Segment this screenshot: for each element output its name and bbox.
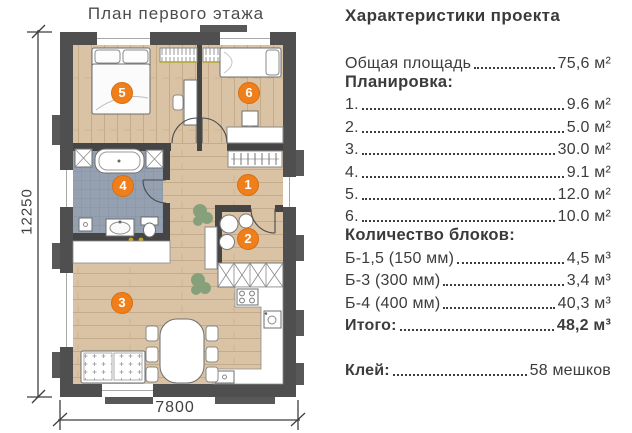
- block-value: 40,3 м³: [558, 295, 611, 313]
- block-label: Б-3 (300 мм): [345, 272, 440, 290]
- dot-leader: [443, 284, 563, 286]
- sink: [106, 219, 134, 236]
- specs-heading: Характеристики проекта: [345, 6, 611, 26]
- room-area-row: 2. 5.0 м²: [345, 114, 611, 136]
- room-number: 4.: [345, 164, 359, 182]
- page: План первого этажа 12250 7800 1 2 3 4 5 …: [0, 0, 632, 433]
- hallway-furniture: [228, 151, 282, 167]
- block-label: Б-1,5 (150 мм): [345, 250, 454, 268]
- room-marker-5: 5: [111, 82, 133, 104]
- glue-row: Клей: 58 мешков: [345, 358, 611, 380]
- block-label: Б-4 (400 мм): [345, 295, 440, 313]
- room-area-value: 9.1 м²: [567, 164, 611, 182]
- room-number: 5.: [345, 186, 359, 204]
- blocks-total-row: Итого: 48,2 м³: [345, 313, 611, 335]
- block-row: Б-4 (400 мм) 40,3 м³: [345, 290, 611, 312]
- room-marker-6: 6: [238, 82, 260, 104]
- stove: [237, 289, 258, 305]
- dot-leader: [393, 374, 527, 376]
- coat-rack: [228, 151, 282, 167]
- blocks-total-label: Итого:: [345, 317, 397, 335]
- blocks-total-value: 48,2 м³: [557, 317, 611, 335]
- room-area-row: 3. 30.0 м²: [345, 137, 611, 159]
- room-number: 3.: [345, 141, 359, 159]
- room-area-value: 12.0 м²: [558, 186, 611, 204]
- room-area-value: 5.0 м²: [567, 119, 611, 137]
- room-number: 6.: [345, 208, 359, 226]
- specs-panel: Характеристики проекта Общая площадь 75,…: [345, 6, 611, 380]
- window: [220, 32, 270, 45]
- dining-table: [146, 319, 218, 383]
- room-number: 1.: [345, 96, 359, 114]
- dimension-vertical-label: 12250: [19, 176, 36, 248]
- room-area-value: 9.6 м²: [567, 96, 611, 114]
- window: [97, 32, 150, 45]
- room-marker-2: 2: [237, 228, 259, 250]
- double-bed: [92, 48, 150, 114]
- sofa: [81, 351, 145, 383]
- closet-band: [73, 241, 170, 263]
- layout-heading: Планировка:: [345, 73, 611, 92]
- dot-leader: [443, 307, 554, 309]
- cabinet: [75, 149, 92, 167]
- dot-leader: [362, 131, 564, 133]
- room-area-row: 5. 12.0 м²: [345, 182, 611, 204]
- washer: [220, 215, 238, 233]
- block-value: 4,5 м³: [567, 250, 611, 268]
- floor-plan-drawing: [0, 0, 316, 433]
- shelf: [227, 127, 283, 143]
- blocks-list: Б-1,5 (150 мм) 4,5 м³ Б-3 (300 мм) 3,4 м…: [345, 245, 611, 335]
- window: [60, 170, 73, 207]
- room-marker-3: 3: [111, 292, 133, 314]
- dimension-horizontal-label: 7800: [130, 399, 220, 417]
- plan-title: План первого этажа: [36, 4, 316, 24]
- room-marker-1: 1: [237, 174, 259, 196]
- dot-leader: [474, 67, 554, 69]
- block-value: 3,4 м³: [567, 272, 611, 290]
- block-row: Б-3 (300 мм) 3,4 м³: [345, 268, 611, 290]
- boiler: [205, 227, 217, 269]
- cabinet: [146, 150, 163, 168]
- block-row: Б-1,5 (150 мм) 4,5 м³: [345, 245, 611, 267]
- dot-leader: [362, 176, 564, 178]
- room-area-value: 30.0 м²: [558, 141, 611, 159]
- total-area-label: Общая площадь: [345, 55, 471, 73]
- window: [60, 273, 73, 347]
- floor-plan: План первого этажа 12250 7800 1 2 3 4 5 …: [0, 0, 316, 433]
- dot-leader: [362, 108, 564, 110]
- glue-value: 58 мешков: [530, 362, 611, 380]
- dot-leader: [362, 153, 555, 155]
- room-area-row: 1. 9.6 м²: [345, 92, 611, 114]
- total-area-row: Общая площадь 75,6 м²: [345, 51, 611, 73]
- floor-drain: [79, 218, 92, 231]
- room-areas-list: 1. 9.6 м² 2. 5.0 м² 3. 30.0 м² 4. 9.1 м²…: [345, 92, 611, 226]
- cabinet-row: [218, 263, 283, 287]
- dot-leader: [457, 262, 564, 264]
- room-marker-4: 4: [112, 175, 134, 197]
- room-number: 2.: [345, 119, 359, 137]
- basin: [220, 235, 235, 250]
- total-area-value: 75,6 м²: [558, 55, 611, 73]
- wardrobe: [160, 48, 197, 62]
- kitchen-sink: [264, 311, 281, 328]
- room-area-value: 10.0 м²: [558, 208, 611, 226]
- window: [283, 177, 296, 207]
- room-area-row: 6. 10.0 м²: [345, 204, 611, 226]
- single-bed: [220, 48, 281, 77]
- blocks-heading: Количество блоков:: [345, 226, 611, 245]
- dot-leader: [362, 220, 555, 222]
- dot-leader: [400, 329, 554, 331]
- basin: [239, 214, 253, 228]
- dot-leader: [362, 198, 555, 200]
- bathtub: [95, 149, 144, 173]
- glue-label: Клей:: [345, 362, 390, 380]
- window: [102, 384, 153, 397]
- room-area-row: 4. 9.1 м²: [345, 159, 611, 181]
